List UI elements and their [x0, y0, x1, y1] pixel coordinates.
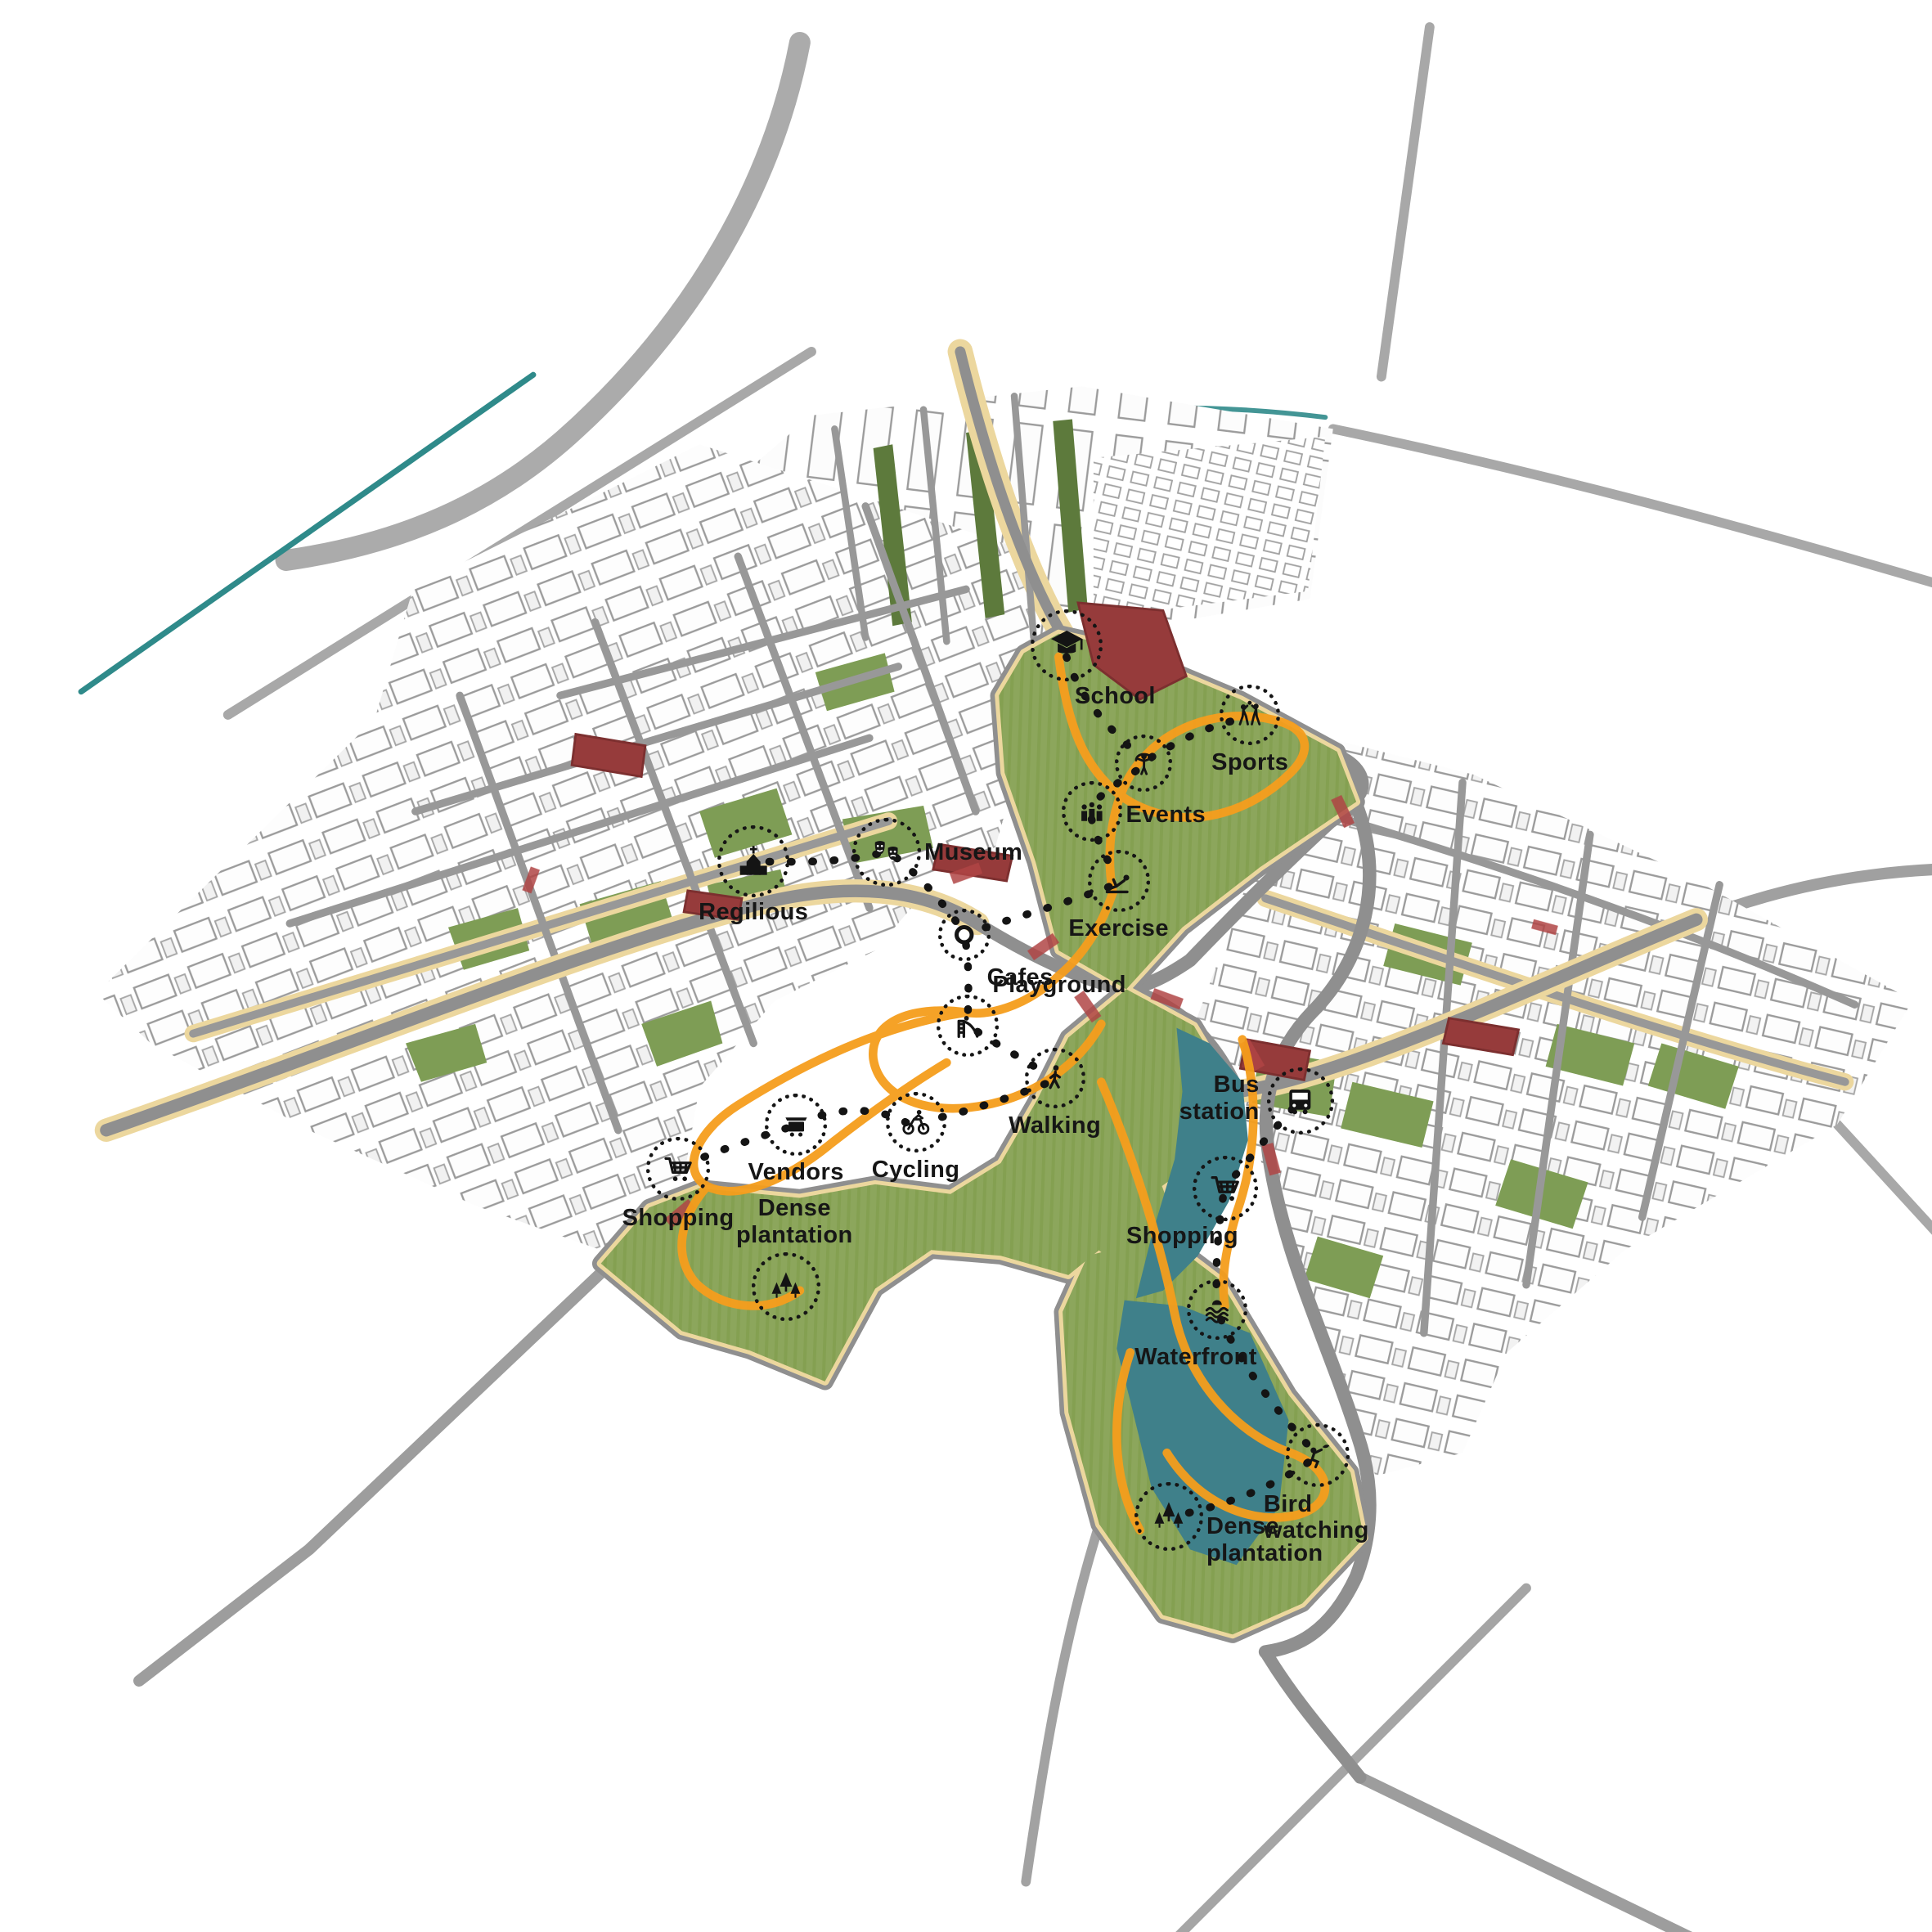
annotation-label: Sports: [1211, 749, 1288, 775]
annotation-label: Events: [1126, 802, 1206, 828]
bus-icon: [1267, 1067, 1334, 1134]
annotation-label: Museum: [924, 839, 1022, 865]
exercise-icon: [1088, 850, 1150, 912]
annotation-label: School: [1075, 683, 1156, 709]
playground-icon: [937, 995, 999, 1057]
annotation-label: Shopping: [1126, 1223, 1238, 1249]
bird-icon: [1286, 1423, 1350, 1487]
annotation-label: Walking: [1009, 1112, 1101, 1139]
cafes-icon: [938, 909, 991, 961]
vendors-icon: [765, 1094, 827, 1156]
religious-icon: [717, 825, 789, 897]
trees-icon: [752, 1252, 820, 1321]
annotation-label: Cycling: [872, 1157, 960, 1183]
school-icon: [1031, 609, 1103, 681]
waterfront-icon: [1187, 1279, 1247, 1340]
annotation-label: Regilious: [699, 899, 808, 925]
events-icon: [1062, 781, 1122, 842]
annotation-label: Dense plantation: [1206, 1513, 1323, 1566]
person-icon: [1115, 735, 1172, 792]
shopping-icon: [646, 1137, 710, 1201]
annotation-label: Waterfront: [1134, 1344, 1257, 1370]
annotation-layer: SchoolSportsEventsExerciseMuseumRegiliou…: [0, 0, 1932, 1932]
cycling-icon: [886, 1092, 946, 1152]
museum-icon: [852, 818, 921, 887]
annotation-label: Bus station: [1179, 1072, 1260, 1125]
sports-icon: [1220, 685, 1280, 745]
annotation-label: Shopping: [622, 1205, 735, 1231]
masterplan-diagram: SchoolSportsEventsExerciseMuseumRegiliou…: [0, 0, 1932, 1932]
annotation-label: Dense plantation: [736, 1195, 853, 1248]
annotation-label: Vendors: [748, 1159, 844, 1185]
trees-icon: [1134, 1482, 1203, 1551]
annotation-label: Exercise: [1068, 915, 1169, 941]
shopping-icon: [1193, 1156, 1258, 1221]
walking-icon: [1025, 1048, 1085, 1108]
annotation-label: Playground: [992, 972, 1126, 998]
